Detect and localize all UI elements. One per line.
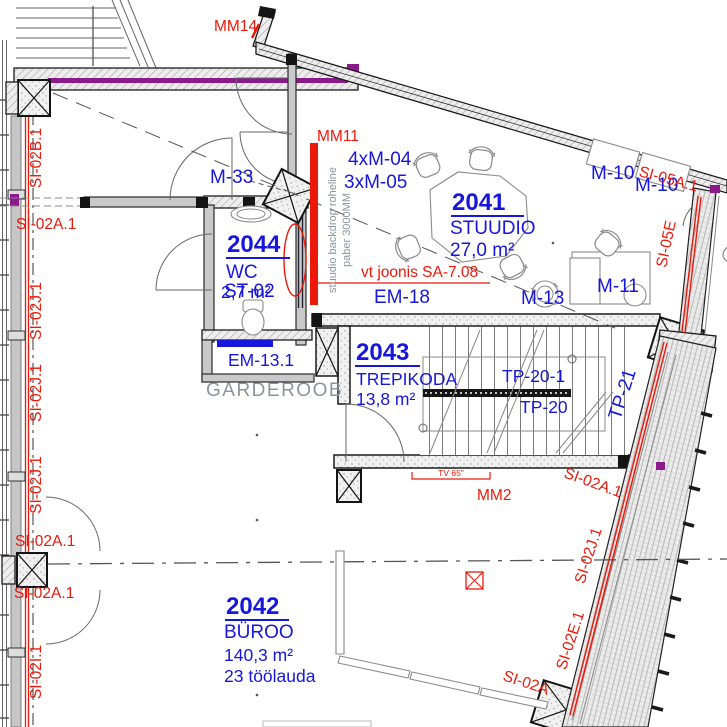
exterior-stair-lines: [16, 0, 156, 68]
em13-cabinet: [217, 340, 273, 347]
si-left-5: SI-02A.1: [15, 533, 75, 550]
tag-em131: EM-13.1: [228, 350, 294, 370]
tag-m04: 4xM-04: [348, 149, 412, 170]
si-right-1: SI-05E: [653, 219, 679, 269]
tag-m10a: M-10: [591, 163, 634, 184]
room-name-2043: TREPIKODA: [356, 369, 457, 389]
room-area-2042: 140,3 m²: [224, 645, 293, 665]
room-name-2042: BÜROO: [224, 622, 294, 643]
toilet: [242, 300, 264, 335]
mark-mm2: MM2: [477, 487, 511, 504]
floor-plan: 2041 STUUDIO 27,0 m² 2044 WC ST-02 2,7 m…: [0, 0, 727, 727]
room-area-2041: 27,0 m²: [450, 240, 514, 261]
si-left-4: SI-02J.1: [28, 456, 45, 514]
tag-m05: 3xM-05: [344, 172, 407, 193]
si-right-2: SI-02A.1: [562, 465, 624, 502]
mark-mm11: MM11: [317, 128, 359, 145]
room-area-2044: 2,7 m²: [221, 282, 271, 302]
room-number-2041: 2041: [452, 189, 505, 216]
label-garderoob: GARDEROOB: [206, 380, 343, 401]
chair: [411, 149, 444, 180]
tag-tp201: TP-20-1: [502, 366, 565, 386]
room-name-2044: WC: [226, 262, 258, 283]
si-left-0: SI-02B.1: [28, 128, 45, 188]
small-column: [337, 470, 361, 502]
tag-m11: M-11: [597, 276, 639, 297]
mark-tv: TV 65": [438, 468, 464, 478]
chair: [467, 145, 496, 172]
si-left-3: SI-02J.1: [28, 364, 45, 422]
note-ref: vt joonis SA-7.08: [361, 264, 478, 281]
si-left-6: SI-02A.1: [14, 585, 74, 602]
si-left-2: SI-02J.1: [28, 282, 45, 340]
si-left-1: SI-02A.1: [16, 216, 76, 233]
purple-accent-top: [48, 78, 348, 83]
tag-em18: EM-18: [374, 287, 430, 308]
tag-m13: M-13: [521, 288, 564, 309]
column: [17, 553, 47, 587]
note-backdrop-2: paber 3000MM: [341, 193, 353, 267]
room-area-2043: 13,8 m²: [356, 389, 415, 409]
purple-accent-left: [10, 194, 19, 206]
room-desks-2042: 23 töölauda: [224, 666, 316, 686]
purple-accent-right-top: [710, 185, 720, 193]
chair: [392, 231, 423, 264]
stairwell: [419, 327, 628, 455]
room-number-2043: 2043: [356, 339, 409, 366]
note-backdrop-1: stuudio backdrop roheline: [327, 167, 339, 293]
braced-wall-block: [316, 328, 338, 376]
office-desk-row: [263, 551, 548, 727]
column: [18, 80, 50, 116]
floorbox-symbol: [466, 572, 483, 589]
purple-accent-right: [656, 462, 665, 470]
mm11-backdrop-bar: [310, 143, 318, 305]
washbasin: [231, 206, 271, 222]
room-number-2042: 2042: [226, 593, 279, 620]
si-left-7: SI-02I.1: [28, 645, 45, 699]
tag-m33: M-33: [210, 167, 253, 188]
room-name-2041: STUUDIO: [450, 218, 536, 239]
mark-mm14: MM14: [214, 18, 257, 35]
tag-tp20: TP-20: [520, 397, 568, 417]
room-number-2044: 2044: [227, 231, 281, 258]
